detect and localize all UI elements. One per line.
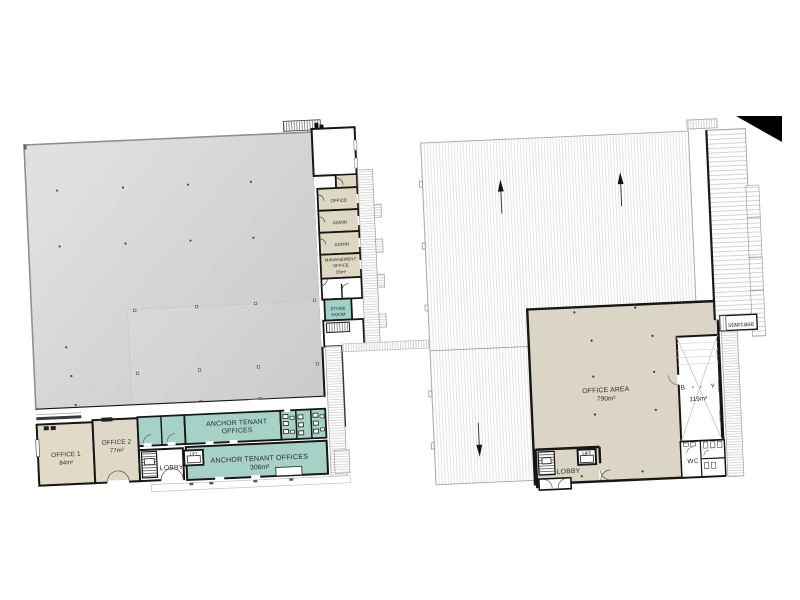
svg-text:OFFICES: OFFICES xyxy=(222,427,253,435)
svg-text:ROOM: ROOM xyxy=(331,312,345,318)
svg-text:95m²: 95m² xyxy=(336,269,347,274)
svg-text:LIFT: LIFT xyxy=(190,452,199,456)
svg-text:B: B xyxy=(681,384,686,391)
svg-text:119m²: 119m² xyxy=(689,395,708,403)
svg-text:OFFICE 2: OFFICE 2 xyxy=(102,438,132,446)
svg-text:OFFICE: OFFICE xyxy=(333,263,349,269)
svg-text:LOBBY: LOBBY xyxy=(160,464,184,472)
svg-text:STORE: STORE xyxy=(330,306,346,312)
svg-text:LOBBY: LOBBY xyxy=(557,468,581,476)
svg-text:staircase: staircase xyxy=(728,321,755,329)
svg-text:790m²: 790m² xyxy=(597,395,617,403)
svg-text:ADMIN: ADMIN xyxy=(334,241,349,247)
svg-text:306m²: 306m² xyxy=(250,464,270,472)
svg-text:WC: WC xyxy=(687,458,699,466)
svg-text:OFFICE 1: OFFICE 1 xyxy=(51,451,81,459)
svg-text:ADMIN: ADMIN xyxy=(332,220,347,226)
svg-text:84m²: 84m² xyxy=(59,460,73,467)
svg-text:OFFICE: OFFICE xyxy=(330,198,347,204)
svg-text:LIFT: LIFT xyxy=(582,450,591,455)
svg-text:77m²: 77m² xyxy=(110,448,124,455)
